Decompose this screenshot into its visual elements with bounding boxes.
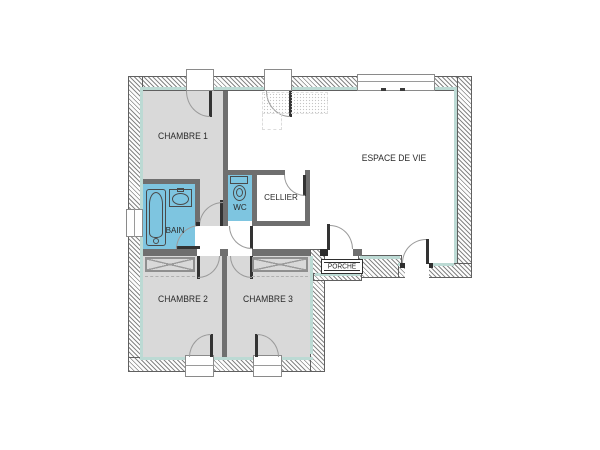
jamb-entrance-left bbox=[320, 249, 328, 256]
wall-hall-south-a bbox=[143, 249, 197, 256]
window-chambre3-glass-line bbox=[253, 365, 282, 366]
window-living-bay-glass-line bbox=[357, 81, 435, 82]
room-label-wc: WC bbox=[233, 202, 246, 212]
sink-basin bbox=[172, 193, 189, 205]
toilet-bowl-inner bbox=[236, 188, 243, 197]
closet-chambre3-symbol bbox=[252, 257, 308, 272]
window-chambre2 bbox=[185, 355, 214, 377]
door-leaf-living bbox=[426, 239, 429, 264]
window-living-bay bbox=[357, 74, 435, 91]
room-label-espace-de-vie: ESPACE DE VIE bbox=[362, 153, 426, 163]
closet-chambre3-front-dashed bbox=[252, 276, 308, 277]
wall-hall-south-stub bbox=[220, 249, 228, 256]
insulation-right-bedrooms bbox=[310, 256, 313, 354]
jamb-living-left bbox=[400, 263, 405, 268]
door-swing-wc bbox=[229, 226, 252, 249]
room-label-chambre-3: CHAMBRE 3 bbox=[243, 294, 293, 304]
window-mullion-tick-left bbox=[381, 88, 386, 91]
wall-hall-south-c bbox=[352, 249, 362, 256]
wall-exterior-right-living bbox=[457, 76, 472, 278]
floor-plan: CHAMBRE 1 CHAMBRE 2 CHAMBRE 3 BAIN WC CE… bbox=[0, 0, 600, 450]
jamb-chambre1-left bbox=[196, 222, 200, 226]
wall-chambre1-wc-left bbox=[223, 91, 228, 226]
wall-hall-south-b bbox=[252, 249, 310, 256]
window-chambre3 bbox=[253, 355, 282, 377]
insulation-bottom-bedrooms bbox=[140, 357, 313, 360]
wall-cellier-bottom bbox=[252, 221, 310, 226]
door-threshold-chambre1 bbox=[186, 69, 214, 91]
door-swing-entrance bbox=[330, 225, 353, 249]
wall-wc-right bbox=[252, 170, 257, 226]
living-door-gap bbox=[405, 263, 429, 278]
closet-chambre2-front-dashed bbox=[145, 276, 195, 277]
window-bain-glass-line bbox=[134, 209, 135, 237]
room-label-cellier: CELLIER bbox=[264, 192, 298, 202]
bathtub-drain-icon bbox=[153, 238, 159, 244]
bathtub-inner bbox=[149, 192, 163, 238]
window-chambre2-glass-line bbox=[185, 365, 214, 366]
wall-bain-top bbox=[143, 179, 200, 184]
sink-faucet-icon bbox=[177, 188, 184, 192]
jamb-living-right bbox=[429, 263, 433, 268]
closet-chambre2-symbol bbox=[145, 257, 195, 272]
kitchen-counter-symbol bbox=[262, 92, 328, 114]
insulation-bottom-step bbox=[360, 256, 400, 259]
window-mullion-tick-right bbox=[400, 88, 405, 91]
toilet-tank-symbol bbox=[230, 176, 248, 184]
room-label-porche: PORCHE bbox=[328, 264, 356, 271]
door-swing-living bbox=[402, 239, 426, 263]
room-label-chambre-1: CHAMBRE 1 bbox=[158, 131, 208, 141]
wall-chambre2-chambre3-divider bbox=[222, 256, 227, 357]
insulation-right-living bbox=[454, 87, 457, 263]
door-threshold-kitchen bbox=[264, 69, 292, 91]
kitchen-counter-return bbox=[262, 114, 282, 130]
room-label-chambre-2: CHAMBRE 2 bbox=[158, 294, 208, 304]
front-door-gap bbox=[327, 249, 353, 256]
room-label-bain: BAIN bbox=[166, 225, 185, 235]
